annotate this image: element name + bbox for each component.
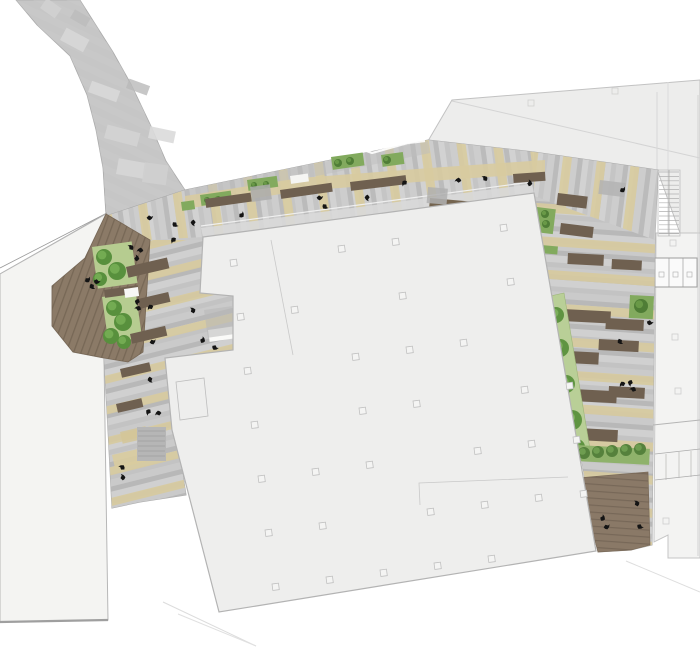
central-building bbox=[165, 193, 596, 612]
east-rooms-block bbox=[655, 258, 697, 287]
site-plan-drawing bbox=[0, 0, 700, 652]
site-plan-page bbox=[0, 0, 700, 652]
